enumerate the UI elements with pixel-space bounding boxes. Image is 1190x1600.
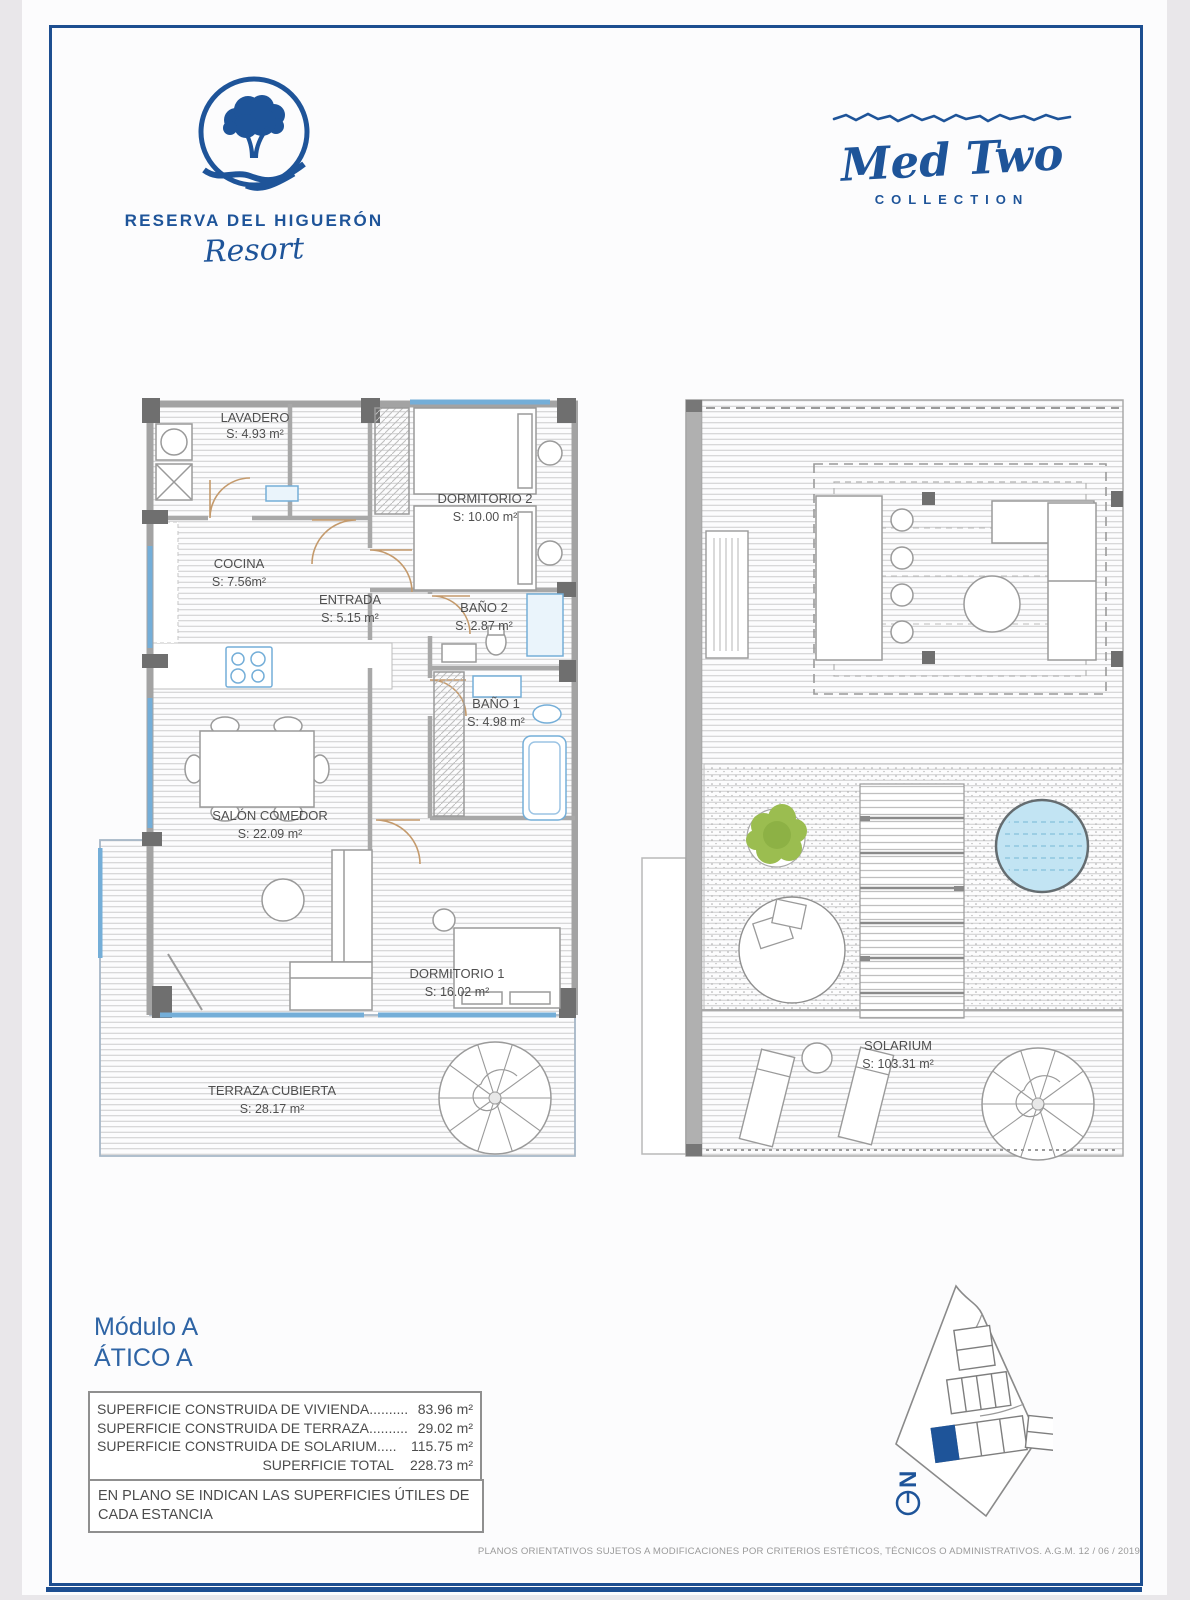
collection-name: Med Two [817,126,1087,193]
party-wall [686,400,702,1156]
collection-label: COLLECTION [818,192,1086,207]
tree-icon [223,95,285,158]
washbasin-icon [442,644,476,662]
room-label-dormitorio-2: DORMITORIO 2 [437,491,532,506]
washbasin-icon [533,705,561,723]
brand-tree-wave-icon [118,70,390,200]
room-label-dormitorio-1: DORMITORIO 1 [409,966,504,981]
stool-icon [891,509,913,531]
room-label-entrada: ENTRADA [319,592,381,607]
note-box: EN PLANO SE INDICAN LAS SUPERFICIES ÚTIL… [88,1479,484,1533]
room-area-lavadero: S: 4.93 m² [226,427,284,441]
room-area-terraza: S: 28.17 m² [240,1102,305,1116]
stool-icon [891,547,913,569]
highlighted-unit [931,1425,959,1462]
sink-icon [266,486,298,501]
dining-table-icon [185,717,329,821]
bathtub-icon [523,736,566,820]
plan-sheet: RESERVA DEL HIGUERÓN Resort Med Two COLL… [22,0,1167,1595]
room-area-entrada: S: 5.15 m² [321,611,379,625]
unit-title: Módulo A ÁTICO A [94,1312,198,1374]
collection-logo: Med Two COLLECTION [818,110,1086,207]
wavy-line-icon [832,110,1072,126]
bedside-table-icon [538,541,562,565]
room-label-salon: SALÓN COMEDOR [212,808,328,823]
room-label-lavadero: LAVADERO [221,410,290,425]
dryer-icon [156,464,192,500]
brand-tagline: Resort [117,228,390,272]
spiral-staircase-icon [439,1042,551,1154]
vent-grille-icon [706,531,748,658]
stool-icon [891,621,913,643]
surface-row-label: SUPERFICIE CONSTRUIDA DE VIVIENDA.......… [97,1400,408,1419]
surface-row-label: SUPERFICIE CONSTRUIDA DE SOLARIUM..... [97,1437,397,1456]
kitchen-cabinets [152,522,178,643]
bedside-table-icon [538,441,562,465]
outdoor-table-icon [816,496,882,660]
spiral-staircase-icon [982,1048,1094,1160]
brand-logo: RESERVA DEL HIGUERÓN Resort [118,70,390,268]
room-label-bano-1: BAÑO 1 [472,696,520,711]
solarium-floor-plan: SOLARIUM S: 103.31 m² [640,398,1124,1168]
shower-icon [527,594,563,656]
slatted-deck [860,784,964,1018]
vanity-icon [473,676,521,697]
side-table-icon [262,879,304,921]
surface-total-row: SUPERFICIE TOTAL 228.73 m² [97,1456,473,1475]
room-area-solarium: S: 103.31 m² [862,1057,934,1071]
stairwell-void [642,858,686,1154]
surface-row: SUPERFICIE CONSTRUIDA DE VIVIENDA.......… [97,1400,473,1419]
room-area-dormitorio-2: S: 10.00 m² [453,510,518,524]
compass-label: N [895,1471,922,1488]
stove-icon [226,647,272,687]
room-area-bano-1: S: 4.98 m² [467,715,525,729]
brand-name: RESERVA DEL HIGUERÓN [118,211,390,231]
round-table-icon [739,897,845,1003]
side-table-icon [802,1043,832,1073]
surface-table: SUPERFICIE CONSTRUIDA DE VIVIENDA.......… [88,1391,482,1482]
surface-row-label: SUPERFICIE CONSTRUIDA DE TERRAZA........… [97,1419,408,1438]
room-label-solarium: SOLARIUM [864,1038,932,1053]
room-area-cocina: S: 7.56m² [212,575,266,589]
surface-row: SUPERFICIE CONSTRUIDA DE SOLARIUM..... 1… [97,1437,473,1456]
room-area-dormitorio-1: S: 16.02 m² [425,985,490,999]
round-table-icon [964,576,1020,632]
wardrobe-icon [434,672,464,816]
surface-row-value: 83.96 m² [418,1400,473,1419]
unit-module: Módulo A [94,1312,198,1343]
room-label-cocina: COCINA [214,556,265,571]
room-label-bano-2: BAÑO 2 [460,600,508,615]
surface-total-value: 228.73 m² [410,1456,473,1475]
surface-total-label: SUPERFICIE TOTAL [262,1456,393,1475]
unit-name: ÁTICO A [94,1343,198,1374]
footer-disclaimer: PLANOS ORIENTATIVOS SUJETOS A MODIFICACI… [382,1546,1140,1557]
bed-icon [414,408,536,494]
pool-icon [996,800,1088,892]
room-area-salon: S: 22.09 m² [238,827,303,841]
wardrobe-icon [375,408,409,514]
bedside-table-icon [433,909,455,931]
surface-row-value: 115.75 m² [411,1437,473,1456]
surface-row: SUPERFICIE CONSTRUIDA DE TERRAZA........… [97,1419,473,1438]
apartment-floor-plan: LAVADERO S: 4.93 m² DORMITORIO 2 S: 10.0… [98,398,578,1168]
room-area-bano-2: S: 2.87 m² [455,619,513,633]
washer-icon [156,424,192,460]
site-plan: N [878,1276,1053,1526]
bottom-rule [46,1587,1142,1592]
room-label-terraza: TERRAZA CUBIERTA [208,1083,336,1098]
stool-icon [891,584,913,606]
north-compass: N [895,1471,922,1514]
surface-row-value: 29.02 m² [418,1419,473,1438]
